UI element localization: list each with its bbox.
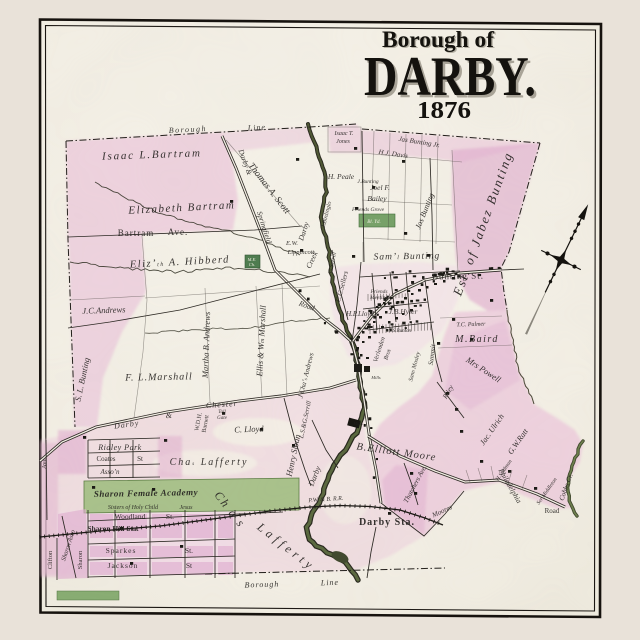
svg-text:1876: 1876: [417, 98, 471, 124]
